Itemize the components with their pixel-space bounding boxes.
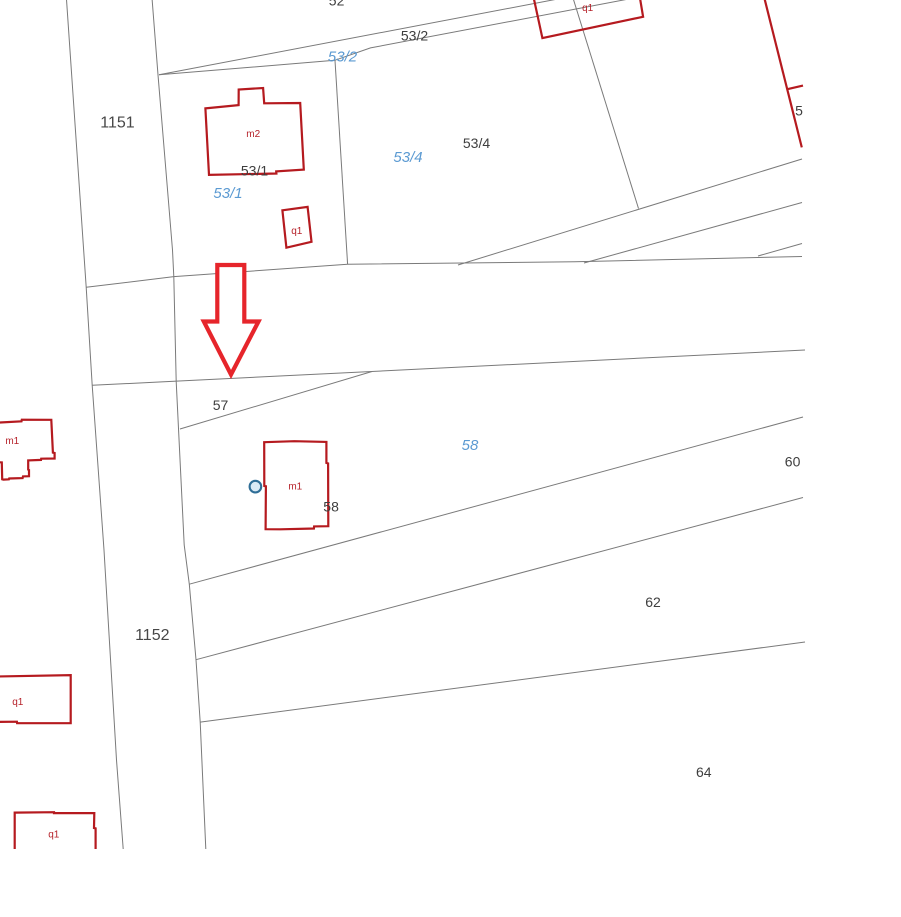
svg-text:53/4: 53/4	[393, 149, 422, 166]
svg-text:53/2: 53/2	[401, 28, 428, 44]
svg-text:m1: m1	[5, 436, 19, 447]
svg-text:62: 62	[645, 594, 661, 610]
svg-text:64: 64	[696, 764, 712, 780]
svg-text:m2: m2	[246, 129, 260, 140]
svg-text:53/1: 53/1	[213, 185, 242, 202]
svg-text:q1: q1	[291, 226, 303, 237]
svg-text:q1: q1	[582, 3, 594, 14]
svg-text:m1: m1	[288, 481, 302, 492]
svg-text:53/4: 53/4	[463, 135, 490, 151]
svg-text:52: 52	[329, 0, 345, 9]
svg-text:57: 57	[213, 397, 229, 413]
svg-text:53/2: 53/2	[328, 49, 358, 66]
svg-text:60: 60	[785, 454, 801, 470]
svg-text:1151: 1151	[100, 114, 135, 131]
svg-text:5: 5	[795, 103, 803, 119]
svg-text:q1: q1	[12, 697, 24, 708]
svg-text:53/1: 53/1	[241, 162, 268, 178]
svg-text:58: 58	[462, 437, 479, 454]
svg-text:q1: q1	[48, 830, 60, 841]
svg-text:58: 58	[323, 499, 339, 515]
svg-text:1152: 1152	[135, 627, 170, 644]
